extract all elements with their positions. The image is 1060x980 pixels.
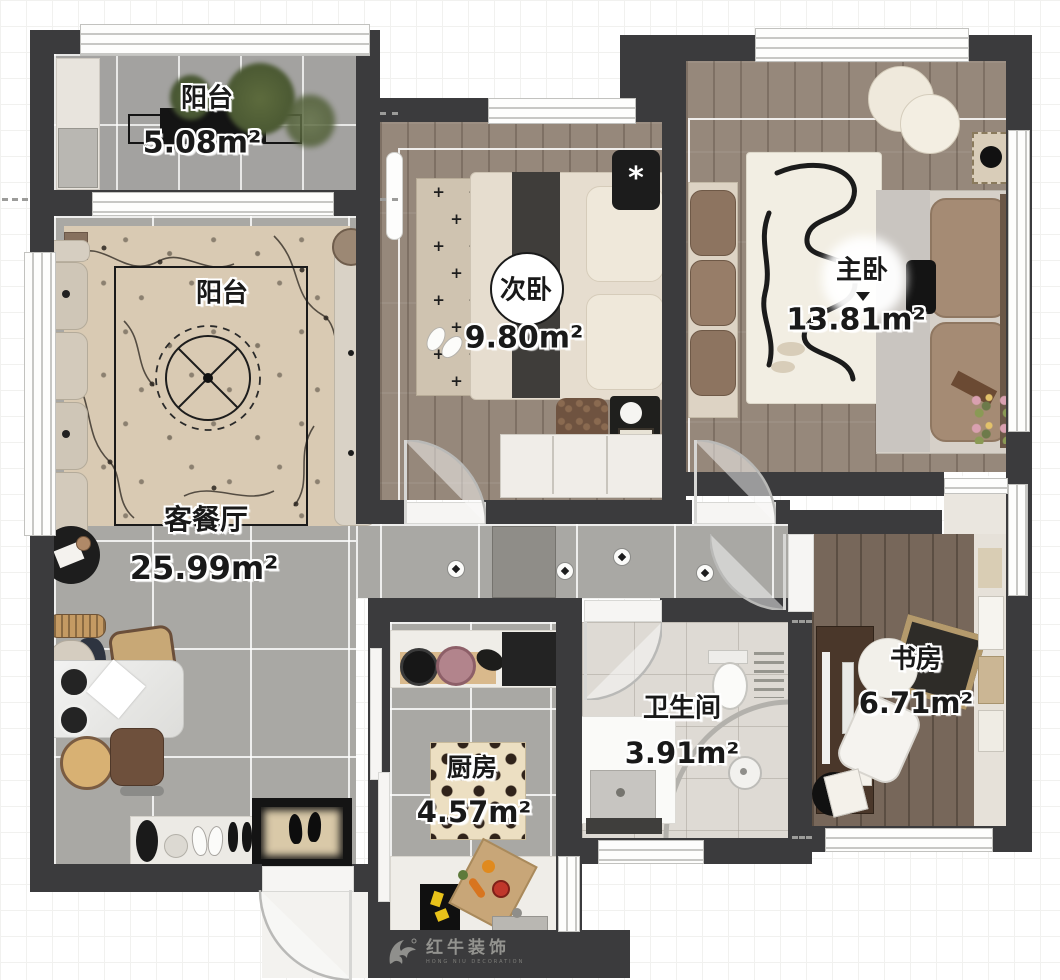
wall [356,212,380,524]
cushion [690,330,736,396]
label-bathroom: 卫生间 [643,688,721,725]
spotlight-icon [613,548,631,566]
book-stack [978,596,1004,650]
hand-fan [164,834,188,858]
plate [58,704,90,736]
door-threshold [262,866,354,892]
pillow [586,294,664,390]
console-handle [348,350,354,356]
vase [136,820,158,862]
wall [368,598,582,622]
shower-drain [740,768,747,775]
bull-logo-icon [386,934,420,970]
wall [484,500,692,524]
window [488,98,636,124]
sofa-button [62,290,70,298]
dimension-dash [380,112,398,115]
door-threshold [788,534,814,612]
towel-radiator [754,652,784,698]
vegetable [482,860,495,873]
cooking-pot [436,646,476,686]
window [1008,130,1030,432]
dimension-dash [792,620,812,623]
label-bedroom-second: 次卧 [500,270,552,307]
spotlight-icon [447,560,465,578]
door-arc-study [710,534,786,610]
armchair-footrest [900,94,960,154]
door-arc-bedroom-master [694,440,776,524]
cushion [690,260,736,326]
area-bedroom-master: 13.81m² [786,303,925,338]
book-stack [978,710,1004,752]
label-bedroom-master: 主卧 [836,250,888,287]
wall [356,30,380,212]
door-arc-bedroom-second [404,440,486,524]
faucet [616,788,625,797]
coffee-cup [76,536,91,551]
window [92,192,334,216]
window [80,24,370,56]
area-study: 6.71m² [859,686,973,720]
pointer-triangle-icon [856,292,870,301]
label-living-dining: 客餐厅 [164,498,248,538]
monitor [822,652,830,764]
wall [662,98,686,524]
wardrobe-divider [606,436,608,494]
dimension-dash [2,198,28,201]
door-arc-entry [258,890,352,980]
dimension-dash [792,836,812,839]
book-stack [978,548,1002,588]
window [944,478,1008,494]
shoe [242,822,252,852]
dimension-dash [380,198,398,201]
kitchen-faucet [512,908,522,918]
cabinet-block [492,526,556,598]
vanity-base [586,818,662,834]
ceiling-fan-icon [152,322,264,434]
window [825,828,993,852]
wall [380,500,404,524]
watermark-brand: 红牛装饰 [426,939,524,957]
wall [30,864,262,892]
area-kitchen: 4.57m² [417,795,531,829]
plate [58,666,90,698]
door-threshold [584,600,662,622]
wardrobe-divider [552,436,554,494]
window [24,252,56,536]
area-balcony-top: 5.08m² [143,126,261,161]
sliding-door-leaf [378,772,390,902]
wall [812,510,942,534]
sofa-button [62,430,70,438]
spotlight-icon [556,562,574,580]
vegetable [492,880,510,898]
nightstand-plant: * [612,150,660,210]
area-bedroom-second: 9.80m² [465,321,583,356]
console-handle [348,450,354,456]
plant [285,95,335,147]
counter-dark [502,632,556,686]
window [598,840,704,864]
cushion [690,190,736,256]
woven-bench [48,614,106,638]
round-stool-tan [60,736,114,790]
watermark: 红牛装饰 HONG NIU DECORATION [386,934,524,970]
floor-hall-connector [356,524,380,598]
shoe [228,822,238,852]
brown-stool [110,728,164,786]
vegetable [458,870,468,880]
floor-plan: + + + + + + + + + + + + + + + + + + + + … [0,0,1060,980]
floor-bay [944,490,1006,536]
area-bathroom: 3.91m² [625,736,739,770]
wardrobe [500,434,664,498]
label-balcony-top: 阳台 [181,78,233,115]
pillow [930,198,1008,318]
wall [788,610,812,850]
sliding-door-leaf [370,648,382,780]
rice-cooker [400,648,438,686]
washing-machine [58,128,98,188]
window [558,856,580,932]
curtain [386,152,403,240]
label-kitchen: 厨房 [447,748,497,784]
label-study: 书房 [890,639,942,676]
nightstand-bowl [980,146,1002,168]
label-balcony-living: 阳台 [196,273,248,310]
book-stack [978,656,1004,704]
window [1008,484,1028,596]
watermark-sub: HONG NIU DECORATION [426,959,524,965]
stool-leg [120,786,164,796]
wall [788,510,812,534]
table-lamp [620,402,642,424]
window [755,28,969,62]
area-living-dining: 25.99m² [130,549,279,587]
